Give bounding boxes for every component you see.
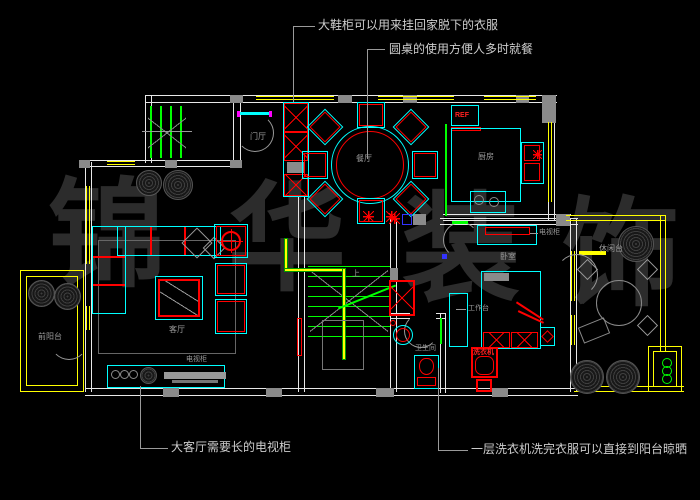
pillar — [376, 388, 394, 397]
stair-flight-arrow — [148, 108, 186, 158]
pillar — [542, 95, 556, 123]
leader-line — [140, 448, 168, 449]
terrace-lounge-chair — [578, 317, 610, 343]
stool — [474, 195, 484, 205]
plant-symbol — [662, 374, 672, 384]
sink-bowl-bottom — [524, 163, 540, 181]
faucet-symbol — [533, 150, 542, 159]
floor-plan-canvas: 锦 华 装 饰 前阳台 — [0, 0, 700, 500]
stool — [489, 197, 499, 207]
decor-circle — [120, 370, 129, 379]
decor-circle — [111, 370, 120, 379]
tree — [618, 226, 654, 262]
window-bedroom-right-b — [571, 315, 577, 345]
stairs-up-label: 上 — [352, 270, 360, 278]
window-top-kitchen — [484, 96, 536, 102]
tv-base — [172, 380, 218, 383]
bed-pillow — [484, 273, 509, 281]
desk — [449, 293, 468, 347]
pillar — [492, 388, 508, 397]
window-top-dining2 — [378, 96, 454, 102]
room-label-front-balcony: 前阳台 — [38, 333, 62, 341]
living-tv-label: 电视柜 — [186, 356, 207, 363]
door-jamb — [237, 111, 240, 117]
pillar — [163, 388, 179, 397]
leader-line — [438, 450, 468, 451]
room-label-foyer: 门厅 — [250, 133, 266, 141]
door-arc-terrace — [556, 254, 598, 296]
desk-label: 工作台 — [468, 305, 489, 312]
door-arc-bedroom — [443, 222, 479, 258]
sofa-side — [92, 226, 126, 314]
dining-chair — [412, 151, 438, 179]
stair-mid-line — [142, 131, 192, 132]
sofa-divider — [93, 284, 125, 286]
room-label-bathroom: 卫生间 — [415, 345, 436, 352]
room-label-dining: 餐厅 — [356, 155, 372, 163]
dining-chair — [302, 151, 328, 179]
armchair — [215, 299, 247, 334]
pillar — [338, 95, 352, 103]
stair-landing — [322, 320, 364, 370]
decor-circle — [129, 370, 138, 379]
washer-label: 洗衣机 — [473, 349, 494, 356]
fridge-label: REF — [455, 112, 469, 119]
fridge: REF — [451, 105, 479, 126]
label-arrow — [530, 233, 538, 234]
toilet-tank — [417, 377, 436, 386]
hall-door-post — [402, 214, 412, 225]
toilet-bowl — [419, 358, 434, 375]
bed-quilt — [483, 332, 510, 348]
room-label-terrace: 休闲台 — [599, 245, 623, 253]
bed-quilt — [511, 332, 538, 348]
window-porch — [107, 161, 135, 167]
kitchen-sliding-door — [445, 124, 447, 216]
door-pivot — [442, 254, 447, 259]
terrace-top-rail — [566, 215, 666, 221]
decor-plant — [140, 367, 157, 384]
wall-porch — [79, 160, 242, 167]
leader-line — [438, 368, 439, 450]
leader-line — [140, 386, 141, 448]
sofa-divider — [93, 256, 125, 258]
wall-center — [298, 196, 305, 392]
door-arc-balcony — [50, 322, 88, 360]
ceiling-light-symbol — [389, 213, 400, 224]
annotation-round-table: 圆桌的使用方便人多时就餐 — [389, 43, 533, 56]
basin-tap — [390, 320, 396, 326]
room-label-kitchen: 厨房 — [478, 153, 494, 161]
washbasin-inner — [396, 328, 410, 342]
shoe-cabinet-cell — [284, 103, 308, 132]
pillar — [413, 214, 426, 225]
room-label-living: 客厅 — [169, 326, 185, 334]
leader-line — [367, 49, 368, 159]
door-jamb — [269, 111, 272, 117]
label-arrow — [456, 309, 466, 310]
bedroom-tv — [485, 227, 530, 235]
washer-base — [476, 379, 492, 392]
dining-chair — [357, 102, 385, 128]
bathroom-door-strip — [440, 318, 442, 344]
annotation-shoe-cabinet: 大鞋柜可以用来挂回家脱下的衣服 — [318, 19, 498, 32]
leader-line — [293, 26, 294, 102]
washing-machine-drum — [475, 356, 494, 375]
tree — [54, 283, 81, 310]
leader-line — [293, 26, 315, 27]
ceiling-light-symbol — [363, 211, 374, 222]
pillar — [165, 160, 177, 168]
coffee-table — [158, 279, 200, 317]
ceiling-fan-cross — [219, 229, 243, 253]
bedroom-door-threshold — [452, 221, 468, 224]
bedroom-tv-label: 电视柜 — [539, 229, 560, 236]
pillar — [230, 95, 243, 103]
opening-frame — [297, 318, 302, 356]
tree — [163, 170, 193, 200]
dining-table-inner — [336, 131, 404, 199]
tree — [606, 360, 640, 394]
leader-line — [367, 49, 385, 50]
terrace-right-rail — [660, 215, 666, 351]
tv-set — [164, 372, 226, 379]
pillar — [230, 160, 242, 168]
sofa-divider — [150, 227, 152, 255]
annotation-tv-cabinet: 大客厅需要长的电视柜 — [171, 441, 291, 454]
stair-railing — [284, 268, 344, 272]
window-kitchen-right — [548, 122, 554, 202]
stair-railing — [284, 238, 288, 270]
tree — [136, 170, 162, 196]
tree — [570, 360, 604, 394]
room-label-bedroom: 卧室 — [500, 253, 516, 261]
shaft-box — [389, 280, 415, 316]
annotation-washing-machine: 一层洗衣机洗完衣服可以直接到阳台晾晒 — [471, 443, 687, 456]
tree — [28, 280, 55, 307]
armchair — [215, 263, 247, 296]
dining-chair — [307, 109, 344, 146]
pillar — [266, 388, 282, 397]
pillar — [79, 160, 90, 168]
